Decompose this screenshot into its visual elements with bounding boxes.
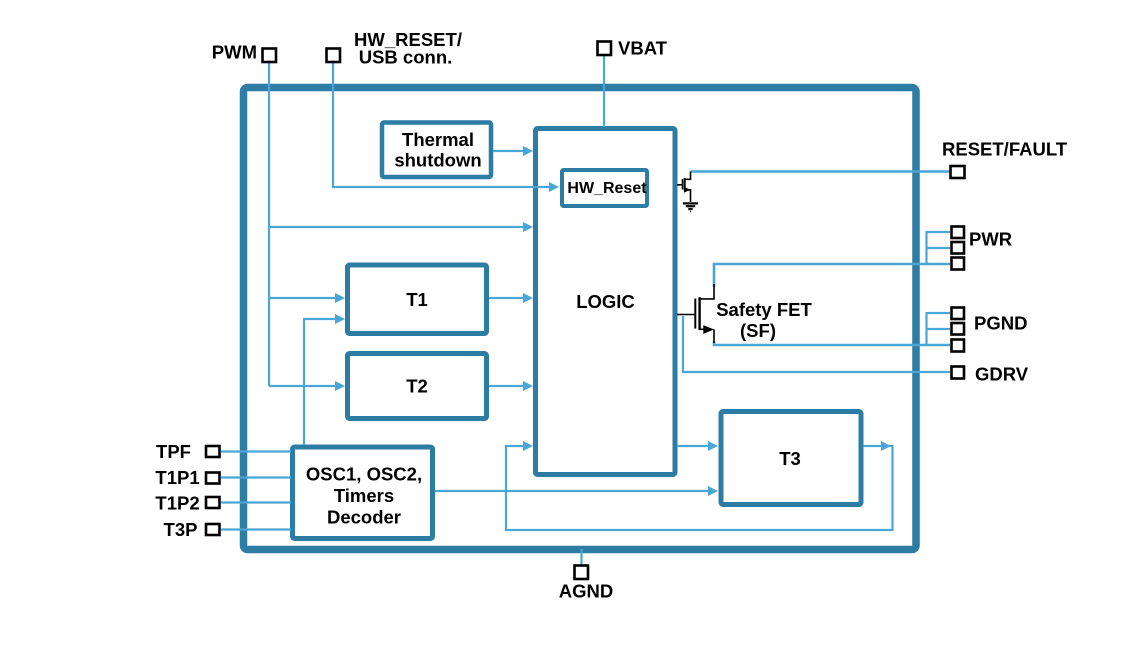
svg-text:PWR: PWR bbox=[969, 229, 1012, 250]
svg-text:T1P2: T1P2 bbox=[155, 493, 199, 514]
svg-text:T3: T3 bbox=[779, 448, 801, 469]
svg-text:OSC1, OSC2,: OSC1, OSC2, bbox=[306, 464, 422, 485]
svg-text:shutdown: shutdown bbox=[394, 150, 481, 171]
svg-text:T2: T2 bbox=[406, 376, 428, 397]
svg-text:T3P: T3P bbox=[164, 519, 198, 540]
svg-text:(SF): (SF) bbox=[740, 320, 776, 341]
svg-text:GDRV: GDRV bbox=[975, 364, 1029, 385]
svg-text:Decoder: Decoder bbox=[327, 507, 401, 528]
svg-text:PGND: PGND bbox=[974, 313, 1027, 334]
svg-text:USB conn.: USB conn. bbox=[359, 47, 453, 68]
svg-text:VBAT: VBAT bbox=[618, 38, 668, 59]
svg-text:TPF: TPF bbox=[156, 441, 191, 462]
svg-text:LOGIC: LOGIC bbox=[576, 291, 635, 312]
svg-text:RESET/FAULT: RESET/FAULT bbox=[942, 139, 1068, 160]
svg-text:Timers: Timers bbox=[334, 485, 394, 506]
svg-text:PWM: PWM bbox=[212, 42, 257, 63]
svg-text:Safety FET: Safety FET bbox=[716, 299, 812, 320]
svg-text:Thermal: Thermal bbox=[402, 129, 474, 150]
svg-text:HW_Reset: HW_Reset bbox=[567, 180, 647, 197]
svg-text:T1P1: T1P1 bbox=[155, 467, 199, 488]
svg-text:T1: T1 bbox=[406, 289, 428, 310]
svg-text:AGND: AGND bbox=[559, 581, 613, 602]
